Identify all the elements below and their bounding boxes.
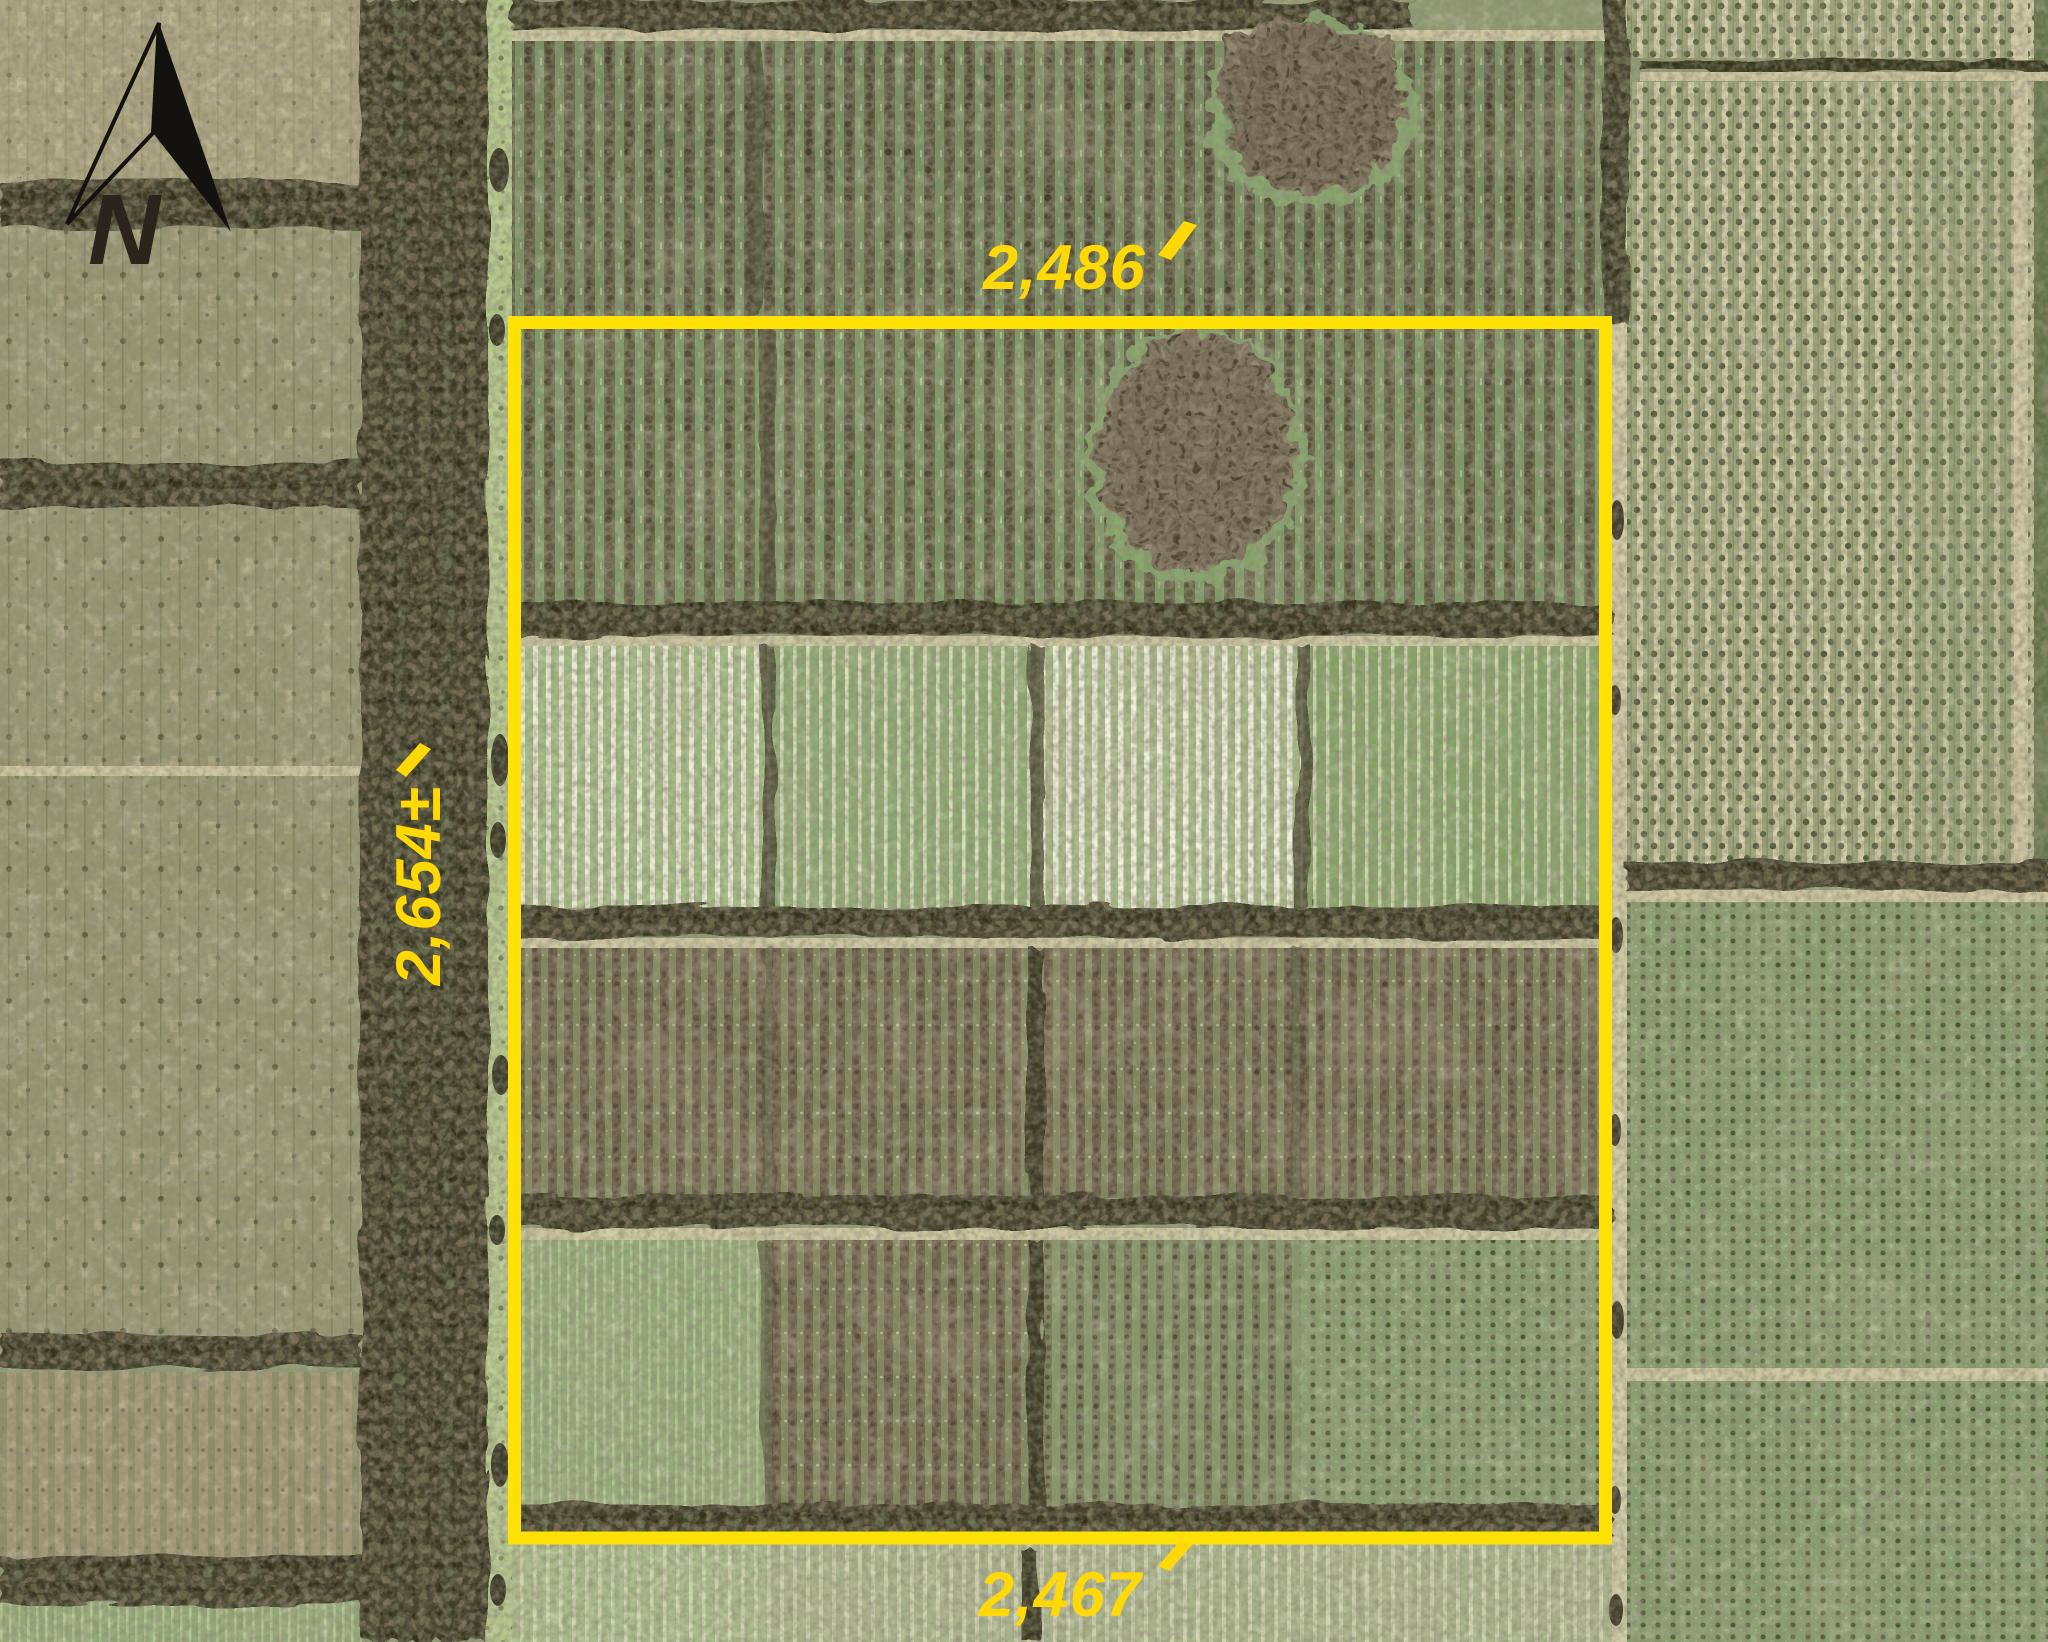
svg-text:N: N [88, 174, 162, 286]
svg-text:2,654±: 2,654± [384, 787, 454, 986]
svg-text:2,486: 2,486 [982, 233, 1146, 303]
svg-text:2,467: 2,467 [978, 1560, 1144, 1630]
